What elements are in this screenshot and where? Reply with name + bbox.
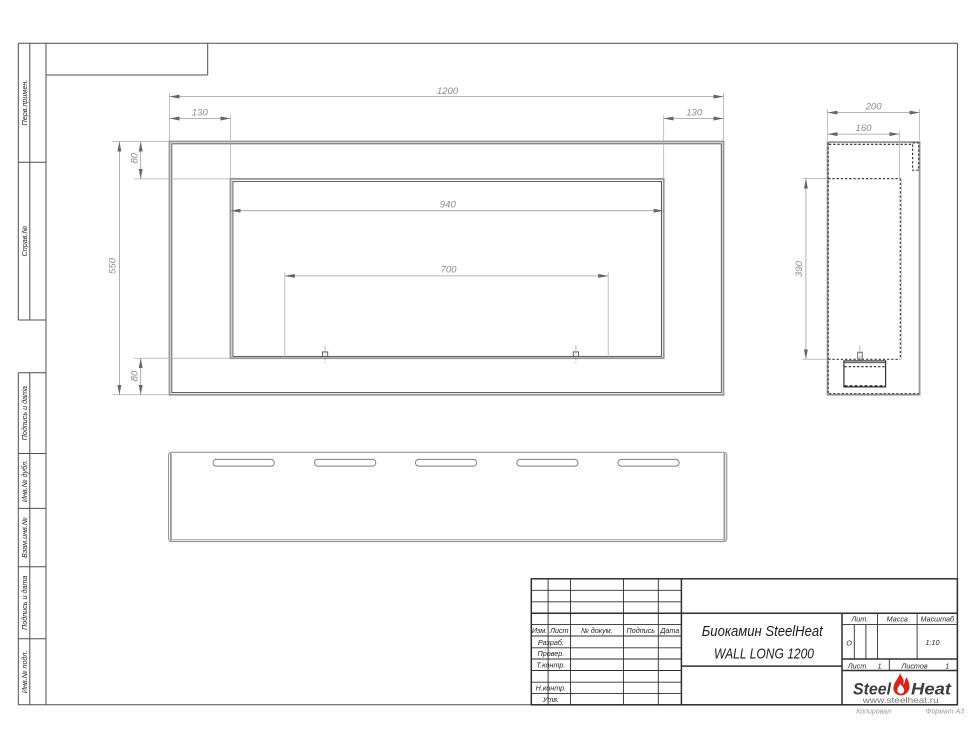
svg-text:700: 700 (440, 265, 457, 276)
svg-text:Взам.инв.№: Взам.инв.№ (20, 517, 29, 558)
svg-text:Инв.№ дубл.: Инв.№ дубл. (20, 460, 29, 502)
svg-text:Справ.№: Справ.№ (20, 226, 29, 257)
svg-text:80: 80 (130, 152, 141, 163)
svg-text:Изм.: Изм. (532, 626, 547, 635)
svg-text:130: 130 (686, 107, 703, 118)
svg-text:550: 550 (108, 257, 119, 274)
svg-text:940: 940 (440, 199, 457, 210)
svg-text:№ докум.: № докум. (581, 626, 613, 635)
svg-text:Разраб.: Разраб. (538, 638, 564, 647)
svg-text:Биокамин SteelHeat: Биокамин SteelHeat (702, 624, 824, 640)
svg-text:Масштаб: Масштаб (921, 615, 956, 624)
svg-text:Н.контр.: Н.контр. (536, 684, 566, 693)
svg-text:390: 390 (794, 260, 805, 277)
svg-text:Т.контр.: Т.контр. (536, 661, 565, 670)
svg-text:1: 1 (878, 661, 882, 670)
svg-text:О: О (846, 639, 852, 648)
svg-text:Лит.: Лит. (850, 615, 868, 624)
svg-text:Инв.№ подл.: Инв.№ подл. (20, 650, 29, 693)
svg-text:Подпись и дата: Подпись и дата (20, 576, 29, 630)
svg-text:1:10: 1:10 (926, 638, 940, 647)
svg-text:Подпись: Подпись (627, 626, 656, 635)
svg-text:1200: 1200 (437, 86, 459, 97)
svg-text:1: 1 (945, 661, 949, 670)
svg-text:160: 160 (855, 123, 872, 134)
svg-text:Провер.: Провер. (538, 649, 565, 658)
svg-text:www.steelheat.ru: www.steelheat.ru (862, 695, 939, 705)
svg-text:130: 130 (192, 107, 209, 118)
svg-text:80: 80 (130, 370, 141, 381)
svg-text:Утв.: Утв. (542, 695, 559, 704)
svg-text:Подпись и дата: Подпись и дата (20, 386, 29, 440)
svg-text:Формат А3: Формат А3 (926, 709, 964, 716)
svg-text:Дата: Дата (659, 626, 679, 635)
svg-text:Масса: Масса (887, 615, 908, 624)
svg-text:WALL LONG 1200: WALL LONG 1200 (714, 647, 814, 663)
svg-text:200: 200 (865, 101, 883, 112)
svg-text:Лист: Лист (847, 661, 867, 670)
svg-text:Копировал: Копировал (856, 709, 891, 716)
svg-text:Перв.примен.: Перв.примен. (20, 80, 29, 126)
svg-text:Листов: Листов (900, 661, 927, 670)
svg-text:Лист: Лист (549, 626, 569, 635)
